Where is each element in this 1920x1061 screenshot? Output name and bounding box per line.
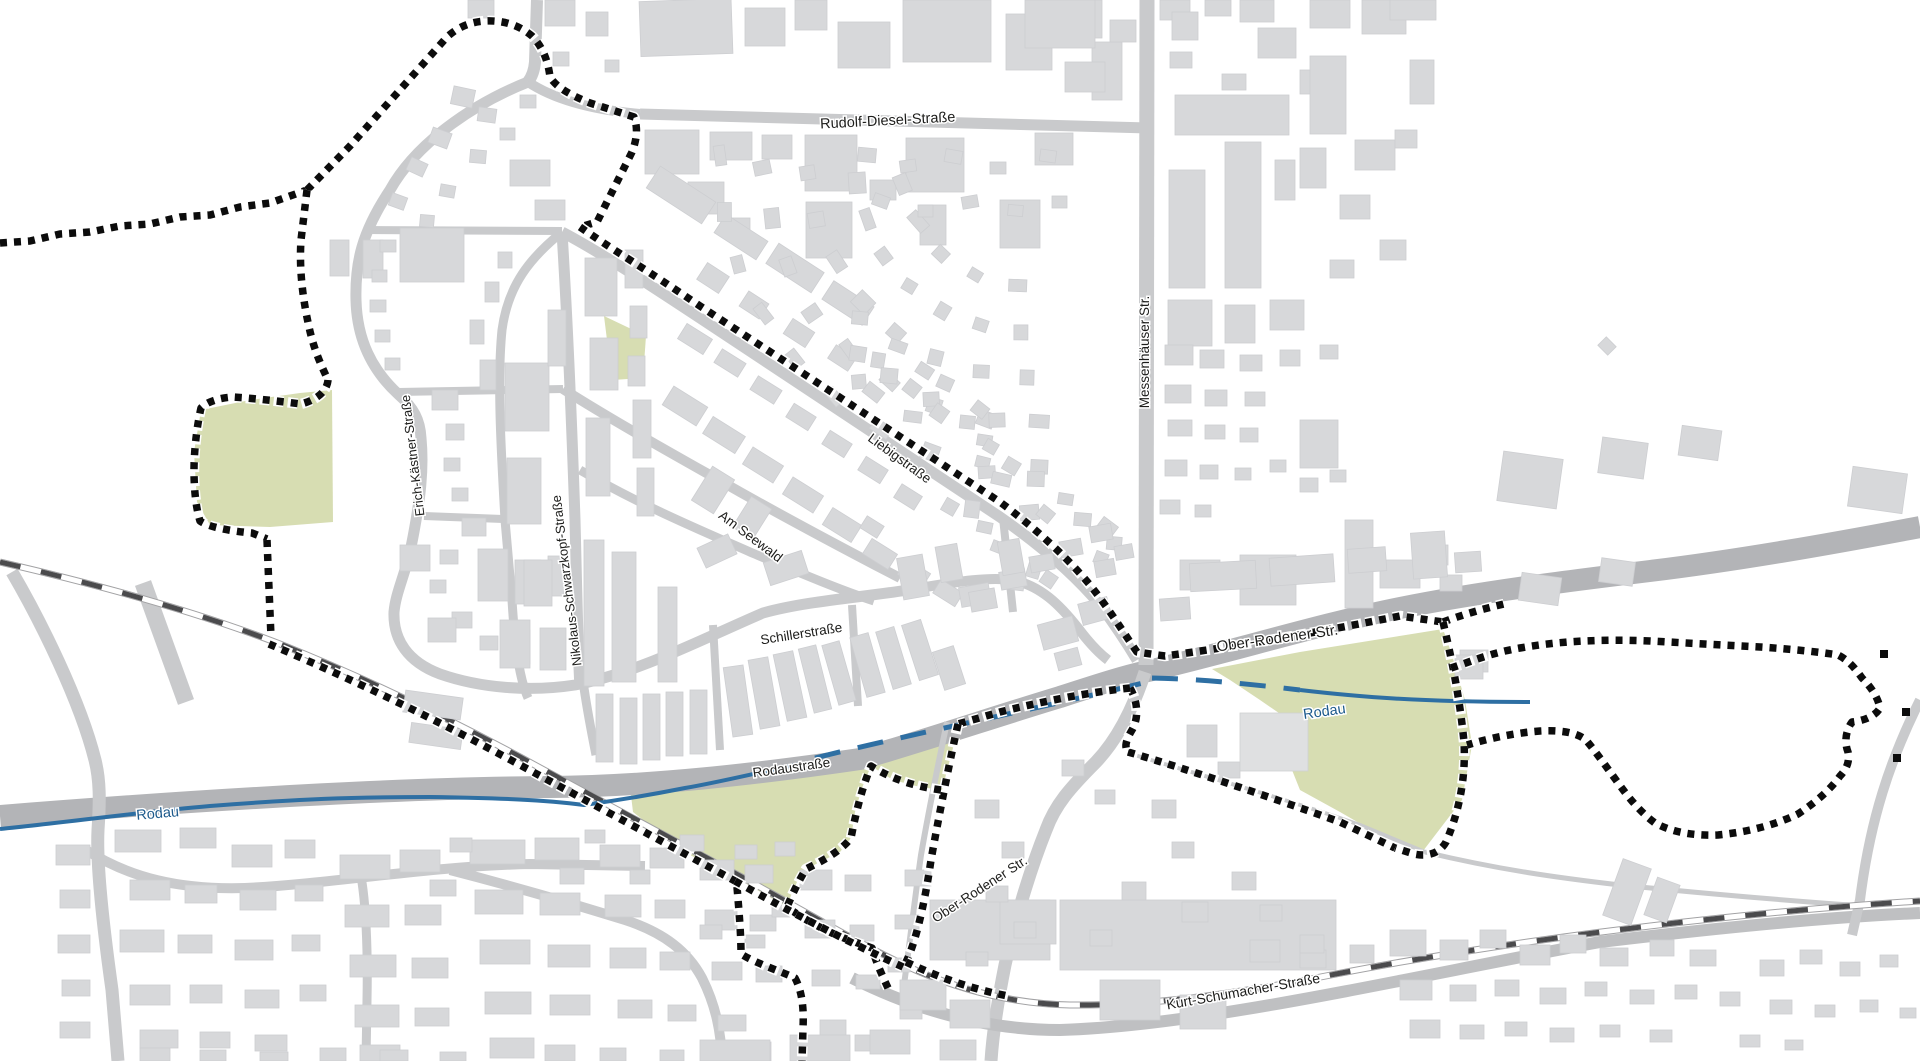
svg-text:Messenhäuser Str.: Messenhäuser Str. (1137, 296, 1152, 409)
